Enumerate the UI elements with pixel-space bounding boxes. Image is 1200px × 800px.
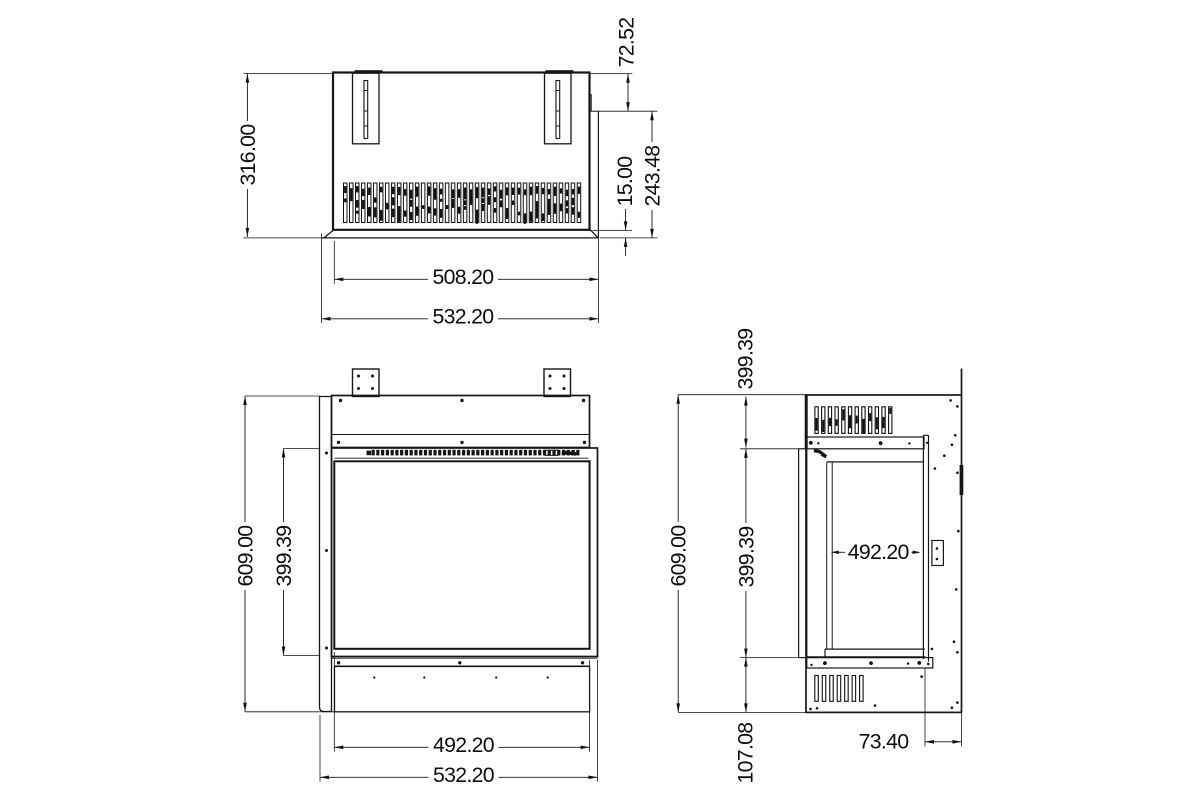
svg-text:399.39: 399.39 <box>272 526 296 587</box>
svg-text:532.20: 532.20 <box>433 763 495 787</box>
svg-text:399.39: 399.39 <box>734 527 758 588</box>
svg-text:73.40: 73.40 <box>859 729 910 753</box>
svg-text:609.00: 609.00 <box>234 525 258 587</box>
svg-text:399.39: 399.39 <box>734 329 758 390</box>
svg-text:492.20: 492.20 <box>433 733 495 757</box>
svg-text:107.08: 107.08 <box>734 723 758 784</box>
svg-text:532.20: 532.20 <box>433 305 495 329</box>
svg-text:609.00: 609.00 <box>667 525 691 587</box>
svg-text:492.20: 492.20 <box>848 540 910 564</box>
svg-text:72.52: 72.52 <box>615 18 639 68</box>
svg-text:15.00: 15.00 <box>613 156 637 207</box>
svg-text:316.00: 316.00 <box>236 124 260 186</box>
svg-text:508.20: 508.20 <box>433 265 495 289</box>
svg-text:243.48: 243.48 <box>641 146 665 207</box>
